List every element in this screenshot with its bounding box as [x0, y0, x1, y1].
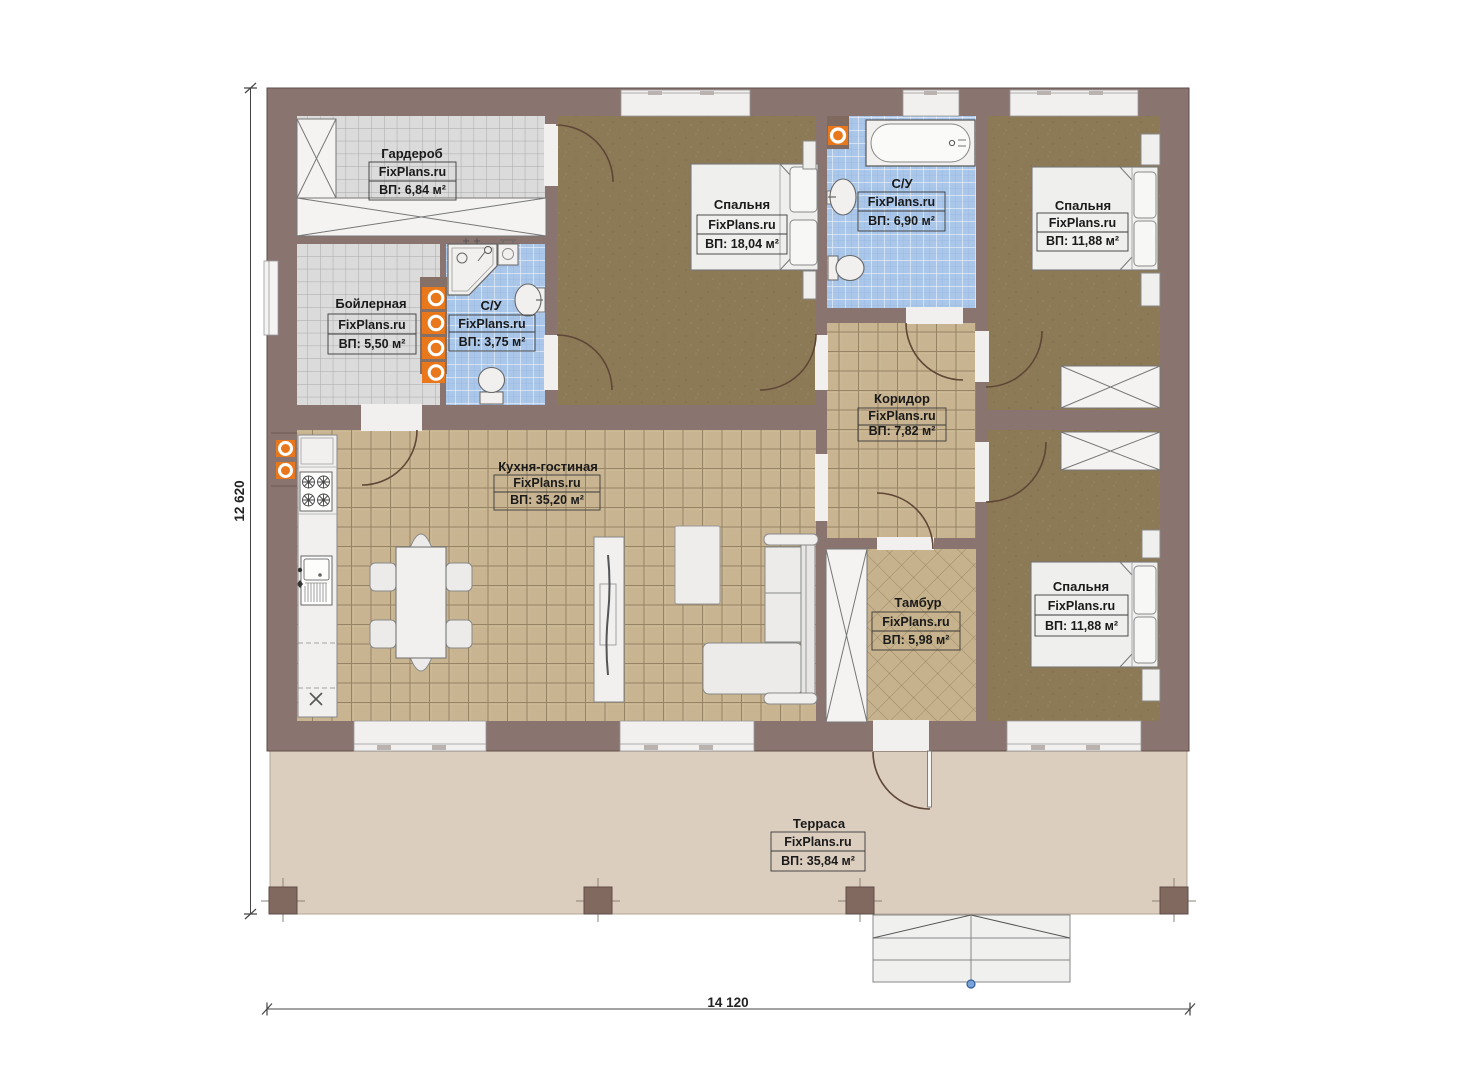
- svg-text:FixPlans.ru: FixPlans.ru: [513, 476, 580, 490]
- svg-text:С/У: С/У: [480, 298, 502, 313]
- svg-text:ВП: 7,82 м²: ВП: 7,82 м²: [869, 424, 936, 438]
- svg-text:FixPlans.ru: FixPlans.ru: [882, 615, 949, 629]
- svg-text:FixPlans.ru: FixPlans.ru: [1048, 599, 1115, 613]
- svg-text:ВП: 11,88 м²: ВП: 11,88 м²: [1045, 619, 1118, 633]
- svg-text:Бойлерная: Бойлерная: [335, 296, 406, 311]
- svg-text:ВП: 11,88 м²: ВП: 11,88 м²: [1046, 234, 1119, 248]
- svg-text:Тамбур: Тамбур: [894, 595, 941, 610]
- svg-text:FixPlans.ru: FixPlans.ru: [1049, 216, 1116, 230]
- svg-text:ВП: 6,90 м²: ВП: 6,90 м²: [868, 214, 935, 228]
- svg-text:ВП: 18,04 м²: ВП: 18,04 м²: [705, 237, 779, 251]
- svg-text:FixPlans.ru: FixPlans.ru: [868, 409, 935, 423]
- svg-text:Спальня: Спальня: [1053, 579, 1109, 594]
- svg-text:ВП: 5,50 м²: ВП: 5,50 м²: [339, 337, 406, 351]
- svg-text:Спальня: Спальня: [714, 197, 770, 212]
- svg-text:ВП: 6,84 м²: ВП: 6,84 м²: [379, 183, 446, 197]
- svg-text:ВП: 35,20 м²: ВП: 35,20 м²: [510, 493, 584, 507]
- svg-text:14 120: 14 120: [707, 995, 748, 1010]
- svg-text:FixPlans.ru: FixPlans.ru: [868, 195, 935, 209]
- svg-text:Спальня: Спальня: [1055, 198, 1111, 213]
- svg-text:Гардероб: Гардероб: [381, 146, 442, 161]
- svg-text:FixPlans.ru: FixPlans.ru: [708, 218, 775, 232]
- svg-text:ВП: 5,98 м²: ВП: 5,98 м²: [883, 633, 950, 647]
- svg-text:С/У: С/У: [891, 176, 913, 191]
- svg-text:ВП: 35,84 м²: ВП: 35,84 м²: [781, 854, 855, 868]
- svg-text:Терраса: Терраса: [793, 816, 846, 831]
- svg-text:FixPlans.ru: FixPlans.ru: [379, 165, 446, 179]
- svg-text:ВП: 3,75 м²: ВП: 3,75 м²: [459, 335, 526, 349]
- svg-text:12 620: 12 620: [232, 480, 247, 521]
- svg-text:Коридор: Коридор: [874, 391, 930, 406]
- svg-text:FixPlans.ru: FixPlans.ru: [458, 317, 525, 331]
- svg-text:Кухня-гостиная: Кухня-гостиная: [498, 459, 598, 474]
- svg-text:FixPlans.ru: FixPlans.ru: [338, 318, 405, 332]
- svg-text:FixPlans.ru: FixPlans.ru: [784, 835, 851, 849]
